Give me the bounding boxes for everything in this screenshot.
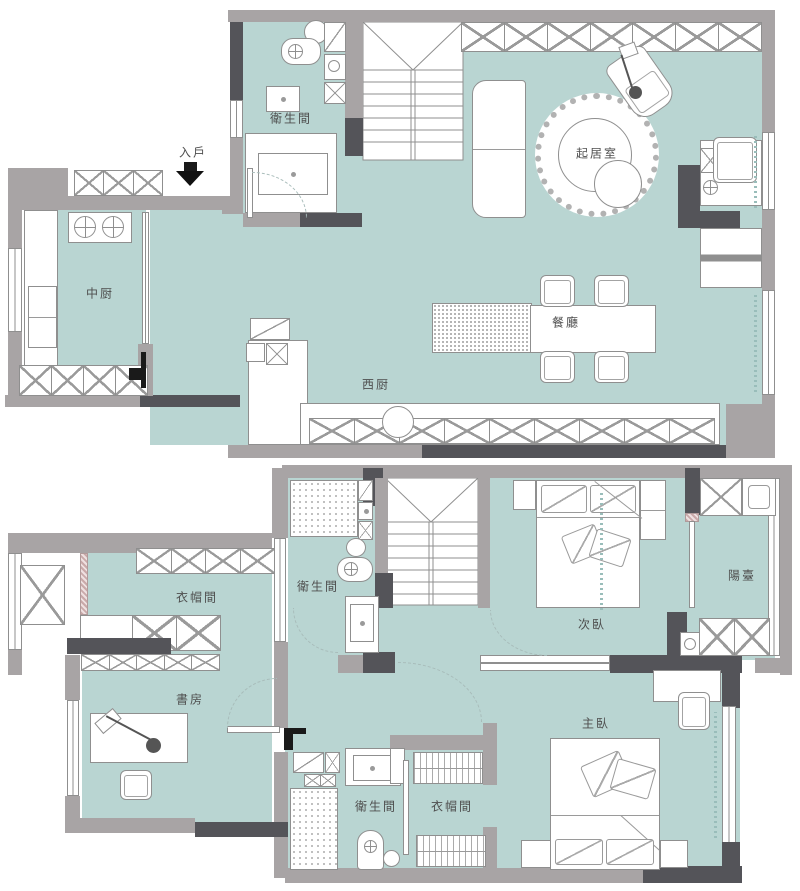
chair-icon xyxy=(120,770,152,800)
wall xyxy=(363,652,395,673)
cabinet-icon xyxy=(80,615,133,639)
sink-icon xyxy=(328,60,340,72)
clothes-rack-icon xyxy=(413,752,483,784)
base-cabinets-icon xyxy=(310,418,715,444)
window xyxy=(762,290,775,395)
flush-icon xyxy=(344,562,358,576)
flush-icon xyxy=(364,840,377,853)
bed-icon xyxy=(550,738,660,870)
chair-icon xyxy=(540,351,575,383)
wall xyxy=(478,468,490,608)
chair-icon xyxy=(594,275,629,307)
sliding-door xyxy=(480,655,610,671)
dining-table-icon xyxy=(530,305,656,353)
bay-cabinet-icon xyxy=(20,565,65,625)
sliding-door xyxy=(689,521,695,608)
bay-window xyxy=(700,228,762,288)
wall xyxy=(8,210,22,248)
curtain-icon xyxy=(754,134,757,208)
sliding-door xyxy=(142,212,149,344)
room-label-master-bedroom: 主臥 xyxy=(582,715,610,732)
wall xyxy=(345,118,363,156)
wall xyxy=(345,22,363,118)
washing-machine-icon xyxy=(742,478,776,516)
cabinet-icon xyxy=(250,318,290,340)
room-label-entry: 入戶 xyxy=(179,144,207,161)
wall xyxy=(65,655,80,700)
staircase-lower xyxy=(385,478,478,605)
cabinet-icon xyxy=(293,752,324,773)
room-label-dining-room: 餐廳 xyxy=(552,314,580,331)
chair-icon xyxy=(713,137,757,183)
window xyxy=(230,100,243,138)
kitchen-island-icon xyxy=(432,303,532,353)
round-sink-icon xyxy=(382,406,414,438)
bed-icon xyxy=(536,480,640,608)
curtain-icon xyxy=(754,292,757,392)
entry-arrow-icon xyxy=(184,162,197,171)
room-label-bathroom-north: 衛生間 xyxy=(297,578,339,595)
cabinet-icon xyxy=(324,22,346,52)
beanbag-icon xyxy=(594,160,642,208)
nightstand-icon xyxy=(513,480,536,510)
window xyxy=(274,538,286,642)
cabinets-icon xyxy=(700,618,770,656)
wall xyxy=(230,138,243,198)
chair-icon xyxy=(594,351,629,383)
room-label-bathroom-south: 衛生間 xyxy=(355,798,397,815)
curtain-icon xyxy=(714,712,717,838)
cabinet-icon xyxy=(266,343,288,365)
cabinets-icon xyxy=(305,774,336,787)
wall xyxy=(726,404,775,458)
entry-arrow-icon xyxy=(176,171,204,186)
window xyxy=(67,700,79,796)
shower-area-icon xyxy=(290,480,358,537)
wall xyxy=(65,196,230,210)
wall xyxy=(274,752,288,878)
kitchen-cabinets-icon xyxy=(75,170,163,196)
shower-area-icon xyxy=(290,788,338,870)
wall xyxy=(722,660,740,708)
wall xyxy=(375,478,388,573)
cabinets-icon xyxy=(82,654,220,671)
wall xyxy=(762,22,775,132)
wall xyxy=(140,395,240,407)
wall xyxy=(483,723,497,785)
door-stop-icon xyxy=(284,734,293,750)
wall xyxy=(685,468,700,515)
chair-icon xyxy=(540,275,575,307)
new-wall-hatch xyxy=(80,553,88,615)
appliance-icon xyxy=(246,343,265,362)
sink-icon xyxy=(350,604,374,642)
room-label-bathroom: 衛生間 xyxy=(270,110,312,127)
wall xyxy=(230,22,243,100)
floor-drain-icon xyxy=(266,86,300,112)
cabinet-icon xyxy=(358,521,373,540)
burner-icon xyxy=(102,216,124,238)
cabinet-icon xyxy=(325,752,340,773)
nightstand-icon xyxy=(640,480,666,540)
room-label-secondary-bedroom: 次臥 xyxy=(578,616,606,633)
sink-icon xyxy=(684,638,696,650)
clothes-rack-icon xyxy=(416,835,486,867)
wall xyxy=(8,650,22,675)
wall xyxy=(722,842,740,878)
room-label-chinese-kitchen: 中厨 xyxy=(86,285,114,302)
staircase-upper xyxy=(363,22,463,160)
wall xyxy=(282,465,788,478)
nightstand-icon xyxy=(521,840,551,868)
wall xyxy=(5,395,140,407)
wall xyxy=(195,822,288,837)
nightstand-icon xyxy=(660,840,688,868)
wall xyxy=(678,211,740,228)
window xyxy=(762,132,775,210)
window xyxy=(722,706,736,844)
wall xyxy=(338,655,365,673)
fridge-icon xyxy=(28,286,57,348)
wall xyxy=(422,445,726,458)
room-label-study: 書房 xyxy=(176,691,204,708)
room-label-western-kitchen: 西厨 xyxy=(362,376,390,393)
wardrobe-cabinets-icon xyxy=(462,22,762,52)
floor-lamp-icon xyxy=(629,86,642,99)
window xyxy=(8,248,22,332)
burner-icon xyxy=(74,216,96,238)
desk-lamp-icon xyxy=(146,738,161,753)
partition xyxy=(403,760,409,855)
room-label-cloakroom-south: 衣帽間 xyxy=(431,798,473,815)
wardrobe-cabinets-icon xyxy=(137,548,275,574)
wall xyxy=(65,818,195,833)
wall xyxy=(67,638,171,654)
wall xyxy=(762,210,775,290)
appliance-icon xyxy=(358,502,373,520)
cabinet-icon xyxy=(700,478,742,516)
floor-plan-canvas: 入戶 衛生間 中厨 西厨 起居室 餐廳 xyxy=(0,0,800,891)
basin-icon xyxy=(383,850,400,867)
chair-icon xyxy=(678,692,710,730)
basin-icon xyxy=(346,538,366,557)
sink-icon xyxy=(353,755,392,781)
sofa-icon xyxy=(472,80,526,218)
wall xyxy=(300,213,362,227)
wall xyxy=(780,465,792,675)
cabinet-icon xyxy=(358,480,373,501)
room-label-balcony: 陽臺 xyxy=(728,567,756,584)
wall xyxy=(8,168,68,210)
curtain-icon xyxy=(600,490,603,610)
cabinet-icon xyxy=(324,82,346,104)
wall xyxy=(755,658,790,673)
wall xyxy=(285,868,645,883)
room-label-living-room: 起居室 xyxy=(576,145,618,162)
wall xyxy=(272,468,288,538)
door-stop-icon xyxy=(129,368,142,380)
wall xyxy=(228,445,422,458)
flush-icon xyxy=(288,44,303,59)
room-label-cloakroom-north: 衣帽間 xyxy=(176,589,218,606)
